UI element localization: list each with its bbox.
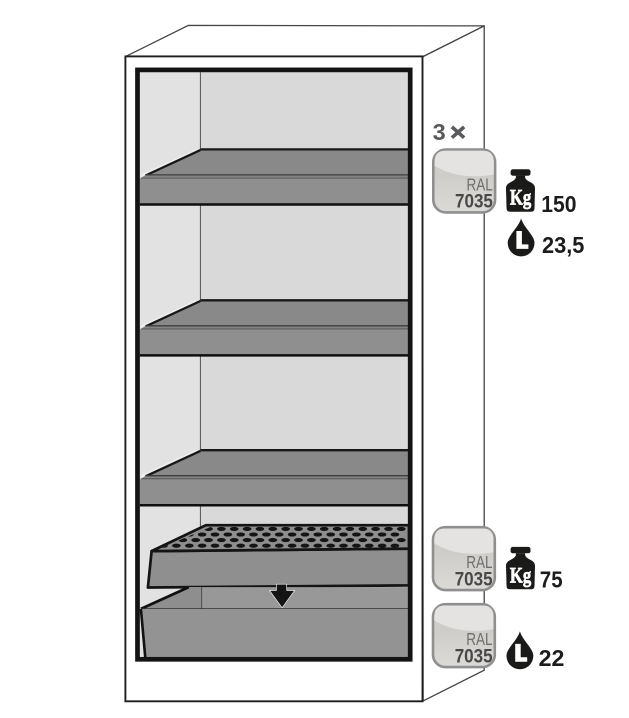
svg-text:22: 22 xyxy=(539,645,565,671)
svg-text:23,5: 23,5 xyxy=(542,232,585,258)
svg-text:150: 150 xyxy=(541,191,576,217)
svg-text:3: 3 xyxy=(433,119,446,145)
svg-text:75: 75 xyxy=(540,567,563,593)
